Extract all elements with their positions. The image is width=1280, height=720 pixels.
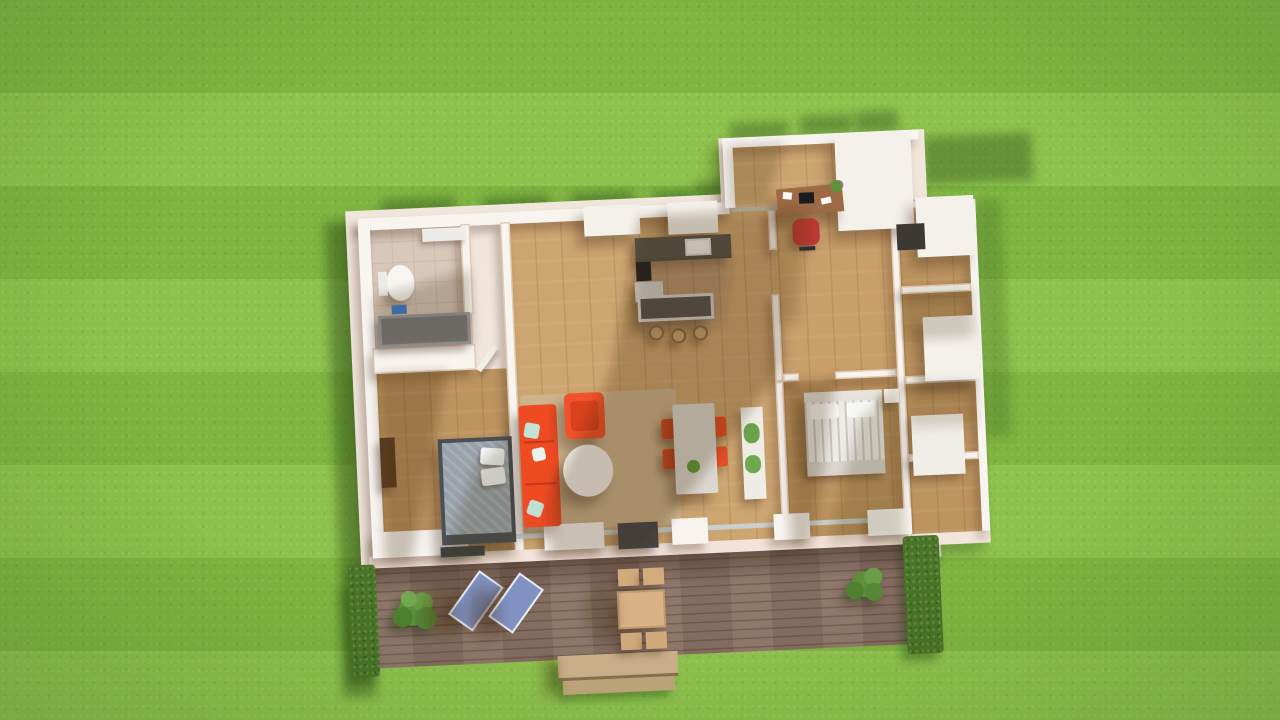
- sideboard-plant-2: [745, 455, 762, 474]
- roof-block-kitchen-1: [583, 204, 640, 237]
- bathroom-bedroom-wall: [372, 344, 476, 375]
- deck-bush-right: [840, 559, 892, 611]
- roof-block-kitchen-2: [667, 201, 718, 235]
- outdoor-stool-2: [643, 567, 665, 585]
- house-group: [0, 0, 1280, 720]
- hedge-left: [347, 564, 380, 677]
- office-chair: [792, 218, 820, 246]
- hedge-right: [902, 535, 943, 655]
- rear-wall-seg-3: [671, 517, 708, 545]
- sofa-cushion-1: [523, 422, 540, 439]
- nightstand: [884, 388, 900, 403]
- rear-wall-seg-5: [867, 508, 912, 536]
- sideboard: [740, 407, 766, 500]
- bed-right-pillow-1: [810, 403, 839, 419]
- sideboard-plant-1: [743, 423, 760, 444]
- outdoor-stool-1: [618, 568, 640, 586]
- desk-paper-1: [783, 192, 793, 200]
- bed-left-pillow-2: [480, 466, 506, 486]
- rear-wall-seg-4: [773, 513, 810, 541]
- bedroom-right-top-wall-a: [783, 373, 799, 382]
- armchair-seat: [570, 400, 599, 431]
- roof-block-entry: [834, 132, 914, 231]
- kitchen-counter: [635, 234, 732, 262]
- cooktop: [636, 262, 652, 282]
- vanity-counter: [422, 227, 467, 242]
- bed-left-pillow-1: [480, 447, 505, 465]
- bathtub: [378, 312, 471, 348]
- aerial-render-canvas: [0, 0, 1280, 720]
- bath-mat-blue: [391, 305, 406, 315]
- sofa-cushion-2: [531, 447, 547, 463]
- entry-doormat: [896, 223, 925, 250]
- bed-right-pillow-2: [846, 402, 875, 418]
- deck-bush-left: [386, 581, 447, 642]
- roof-block-wing-mid: [923, 315, 980, 381]
- outdoor-stool-4: [646, 631, 668, 649]
- kitchen-island: [637, 293, 714, 322]
- bedroom-left-bench: [440, 545, 484, 557]
- dining-table: [672, 403, 718, 495]
- toilet-tank: [378, 272, 388, 296]
- office-chair-base: [799, 246, 815, 251]
- outdoor-table: [617, 589, 667, 629]
- tv-unit: [618, 522, 659, 550]
- wing-dresser: [911, 414, 966, 476]
- wardrobe: [379, 437, 396, 488]
- laptop: [799, 192, 814, 204]
- kitchen-sink: [685, 238, 712, 256]
- outdoor-stool-3: [621, 632, 643, 650]
